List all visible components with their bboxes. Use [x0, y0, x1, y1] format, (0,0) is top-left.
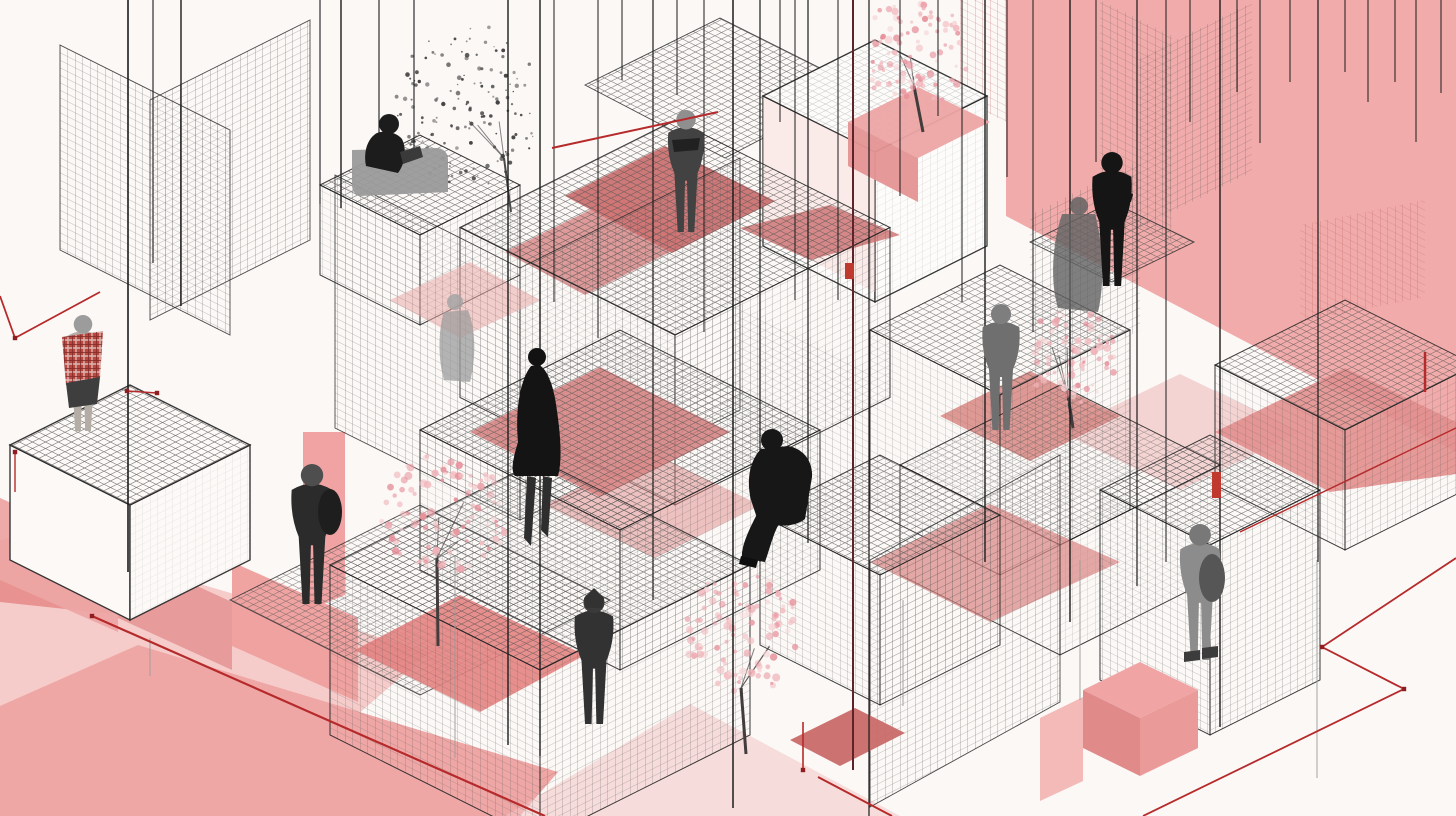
red-accent-rect [1212, 472, 1221, 498]
red-accent-rect [845, 263, 854, 279]
red-accent-dot [155, 391, 159, 395]
isometric-mesh-illustration [0, 0, 1456, 816]
red-accent-dot [1402, 687, 1406, 691]
illustration-canvas [0, 0, 1456, 816]
red-accent-dot [13, 450, 17, 454]
red-accent-dot [801, 768, 805, 772]
red-accent-dot [13, 336, 17, 340]
red-accent-dot [1320, 645, 1324, 649]
red-accent-dot [90, 614, 94, 618]
red-accent-dot [125, 389, 129, 393]
